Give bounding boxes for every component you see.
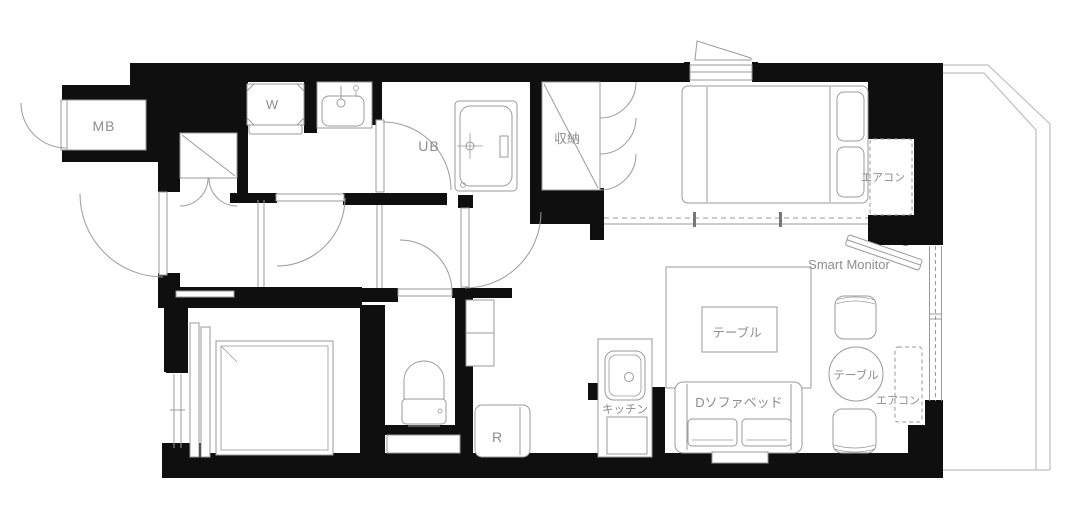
label-unit-bath: UB bbox=[418, 138, 439, 154]
bedroom-bed bbox=[682, 86, 868, 203]
bedroom-window bbox=[684, 41, 758, 82]
pillow bbox=[837, 92, 864, 141]
label-sofa-bed: Dソファベッド bbox=[695, 395, 782, 410]
ldk-door bbox=[461, 208, 541, 288]
refrigerator bbox=[475, 405, 530, 457]
balcony-window bbox=[930, 246, 942, 401]
shoe-closet bbox=[180, 133, 237, 206]
kitchen-sink bbox=[605, 351, 645, 400]
bedroom2-bed bbox=[190, 323, 333, 457]
label-washing-machine: W bbox=[266, 97, 279, 112]
meter-box bbox=[21, 100, 146, 150]
floor-plan-svg: MB W UB 収納 エアコン Smart Monitor テーブル テーブル … bbox=[0, 0, 1079, 531]
pillow bbox=[837, 147, 864, 197]
washbasin bbox=[317, 82, 372, 128]
living-aircon bbox=[895, 347, 922, 422]
balcony bbox=[943, 65, 1050, 470]
entrance-door bbox=[80, 192, 167, 277]
label-refrigerator: R bbox=[492, 429, 502, 445]
meter-box-door bbox=[61, 100, 67, 150]
label-round-table: テーブル bbox=[833, 368, 878, 382]
label-kitchen: キッチン bbox=[602, 403, 648, 416]
window-flap-icon bbox=[695, 41, 751, 60]
label-bedroom-aircon: エアコン bbox=[861, 172, 905, 184]
washroom-door bbox=[276, 194, 345, 266]
label-living-table: テーブル bbox=[712, 325, 761, 340]
unit-bath bbox=[376, 101, 517, 192]
toilet-niche bbox=[387, 435, 460, 453]
bedroom2-window bbox=[166, 366, 188, 448]
corridor-cabinet bbox=[466, 300, 494, 366]
bath-door bbox=[376, 120, 451, 192]
label-storage: 収納 bbox=[554, 131, 580, 146]
kitchen-counter bbox=[598, 339, 652, 457]
label-meter-box: MB bbox=[93, 118, 116, 134]
bedroom2-sliding-door bbox=[176, 291, 234, 297]
toilet bbox=[402, 361, 446, 426]
toilet-door bbox=[398, 240, 452, 296]
chair-top bbox=[835, 296, 876, 339]
label-smart-monitor: Smart Monitor bbox=[808, 257, 890, 272]
sliding-partition bbox=[604, 212, 868, 227]
floor-plan: MB W UB 収納 エアコン Smart Monitor テーブル テーブル … bbox=[0, 0, 1079, 531]
bathtub bbox=[455, 101, 517, 191]
corridor-partition bbox=[258, 200, 382, 288]
chair-bottom bbox=[833, 409, 876, 453]
label-living-aircon: エアコン bbox=[876, 395, 920, 407]
